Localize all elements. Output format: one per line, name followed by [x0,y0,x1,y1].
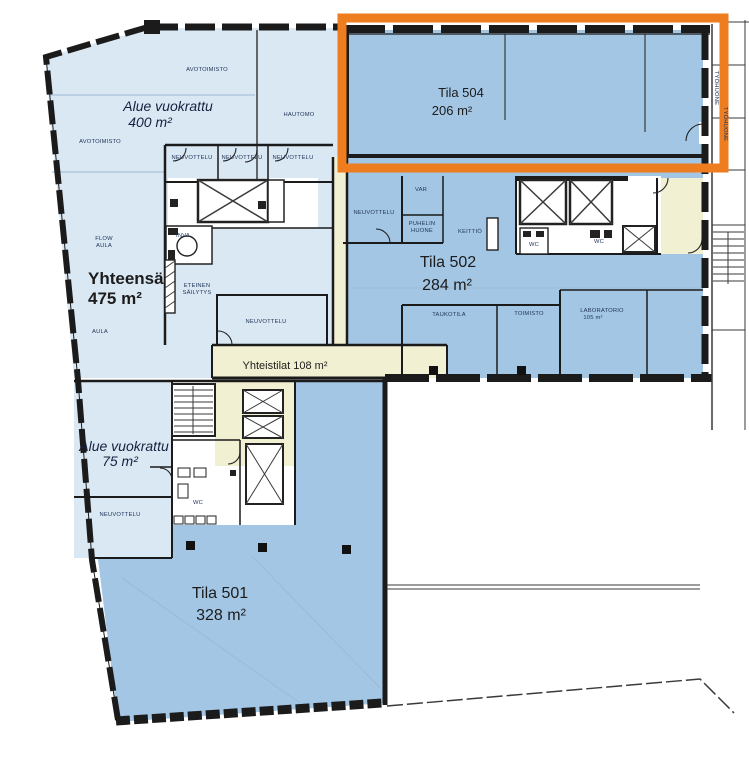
label-yhteensa-name: Yhteensä [88,269,164,288]
room-label: NEUVOTTELU [354,210,395,216]
room-label: LABORATORIO [580,308,624,314]
label-tila504-name: Tila 504 [438,85,484,100]
region-corridor-yellow [333,157,347,345]
room-label: NEUVOTTELU [100,512,141,518]
label-tila501-name: Tila 501 [192,585,248,602]
room-label: INVA [176,233,190,239]
room-label: WC [594,239,604,245]
room-label: WC [193,500,203,506]
label-yhteensa-area: 475 m² [88,289,142,308]
room-label: FLOW [95,236,113,242]
room-label: KEITTIÖ [458,228,482,235]
kitchen-island [487,218,498,250]
room-label: AULA [92,329,108,335]
toilet-fixture [177,236,197,256]
room-label: NEUVOTTELU [273,155,314,161]
floor-plan-page: Tila 504 206 m² Tila 502 284 m² Tila 501… [0,0,749,775]
label-yhteistilat: Yhteistilat 108 m² [243,360,328,372]
room-label: VAR [415,187,427,193]
annex-staircase [713,232,744,284]
room-label: TYÖHUONE [722,107,729,141]
label-alue75-area: 75 m² [102,453,139,469]
room-label: WC [529,242,539,248]
room-label: ETEINEN [184,283,211,289]
floor-plan-drawing: Tila 504 206 m² Tila 502 284 m² Tila 501… [0,0,749,775]
label-tila504-area: 206 m² [432,103,473,118]
label-alue75-name: Alue vuokrattu [78,438,169,454]
label-tila501-area: 328 m² [196,607,246,624]
room-label: NEUVOTTELU [222,155,263,161]
room-label: HUONE [411,228,433,234]
room-label: AVOTOIMISTO [79,139,121,145]
room-label: 105 m² [583,315,602,321]
room-label: AULA [96,243,112,249]
room-label: TYÖHUONE [713,71,720,105]
region-yellow-topright [657,178,703,254]
room-label: TAUKOTILA [432,312,466,318]
label-tila502-area: 284 m² [422,277,472,294]
room-label: PUHELIN [409,221,436,227]
room-label: SÄILYTYS [183,289,212,296]
label-tila502-name: Tila 502 [420,254,476,271]
label-alue400-area: 400 m² [128,114,173,130]
region-tila-504 [349,30,703,157]
room-label: HAUTOMO [284,112,315,118]
room-label: NEUVOTTELU [246,319,287,325]
room-label: AVOTOIMISTO [186,67,228,73]
label-alue400-name: Alue vuokrattu [122,98,213,114]
room-label: TOIMISTO [514,311,544,317]
room-label: NEUVOTTELU [172,155,213,161]
